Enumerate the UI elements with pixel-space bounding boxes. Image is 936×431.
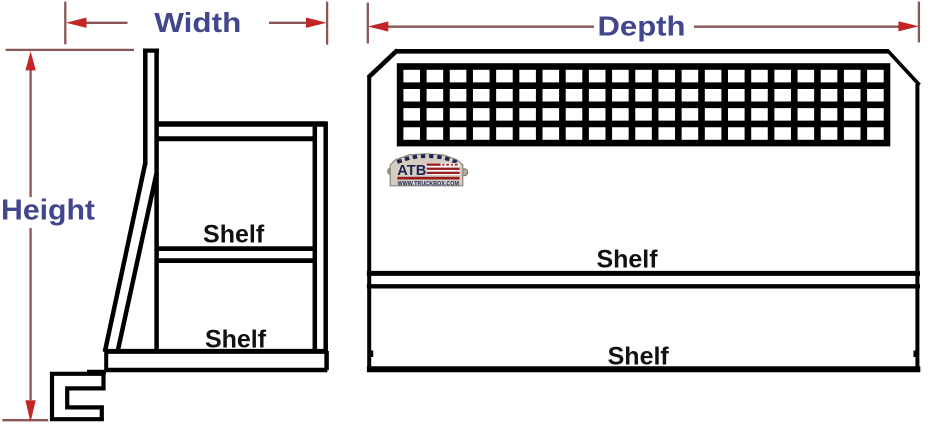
svg-text:Width: Width <box>154 7 241 38</box>
svg-text:Shelf: Shelf <box>608 343 670 371</box>
svg-text:ATB: ATB <box>397 162 426 179</box>
svg-text:Shelf: Shelf <box>205 326 267 354</box>
svg-text:Depth: Depth <box>598 10 686 41</box>
svg-text:Shelf: Shelf <box>203 221 265 249</box>
svg-text:Height: Height <box>1 195 95 227</box>
svg-text:WWW.TRUCKBOX.COM: WWW.TRUCKBOX.COM <box>398 180 460 187</box>
svg-text:Shelf: Shelf <box>596 246 658 274</box>
